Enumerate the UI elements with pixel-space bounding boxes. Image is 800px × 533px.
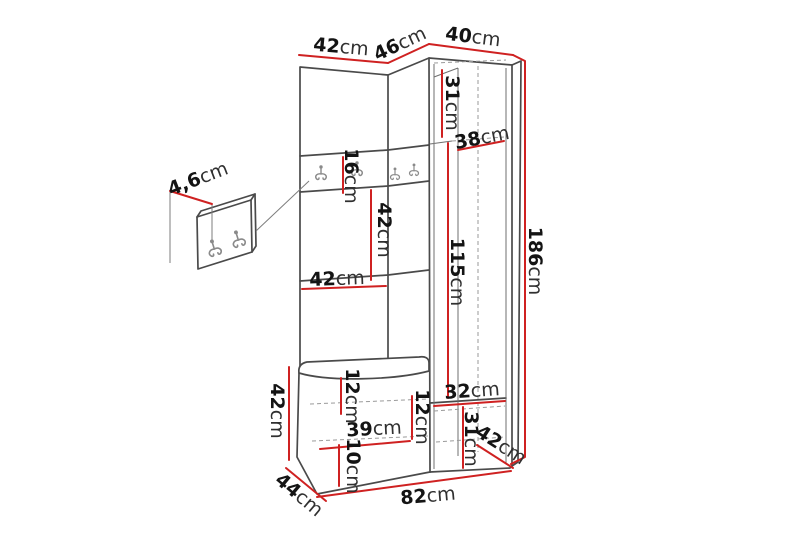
label-bench-height: 42cm <box>267 383 289 438</box>
label-upper-shelf-depth: 31cm <box>442 75 464 130</box>
label-niche-height: 42cm <box>374 202 396 257</box>
label-top-depth: 46cm <box>370 22 430 65</box>
label-hook-rail-height: 16cm <box>341 148 363 203</box>
label-bench-inner-height: 12cm <box>412 389 434 444</box>
wardrobe-side-strip <box>512 61 521 466</box>
coat-hook-icon <box>316 165 327 179</box>
callout-line <box>256 181 309 231</box>
label-lower-shelf-width: 32cm <box>444 378 501 404</box>
label-panel-thickness: 4,6cm <box>165 157 231 200</box>
diagram-canvas: 42cm 46cm 40cm 4,6cm 16cm 31cm 38cm 186c… <box>0 0 800 533</box>
coat-hook-icon <box>206 238 222 257</box>
cabinet-top-and-left-edge <box>300 58 512 368</box>
label-total-height: 186cm <box>525 227 547 296</box>
hallway-unit-dimension-diagram: 42cm 46cm 40cm 4,6cm 16cm 31cm 38cm 186c… <box>0 0 800 533</box>
hook-rail-icons <box>316 161 419 179</box>
label-door-height: 115cm <box>447 238 469 307</box>
label-plinth-height: 10cm <box>343 438 365 493</box>
wall-hook-panel-detail <box>170 181 309 269</box>
hook-rail-bottom-edge <box>300 181 429 192</box>
hook-rail-top-edge <box>300 145 429 156</box>
dimension-labels: 42cm 46cm 40cm 4,6cm 16cm 31cm 38cm 186c… <box>165 22 547 521</box>
label-bench-inner-width: 39cm <box>346 416 402 441</box>
coat-hook-icon <box>410 163 419 175</box>
label-total-width: 82cm <box>399 482 456 509</box>
coat-hook-icon <box>391 167 400 179</box>
coat-hook-icon <box>230 229 246 248</box>
label-top-width: 42cm <box>312 33 369 60</box>
label-seat-thickness: 12cm <box>342 368 364 423</box>
label-niche-width: 42cm <box>309 267 365 291</box>
wardrobe-bottom-edge <box>430 466 512 472</box>
